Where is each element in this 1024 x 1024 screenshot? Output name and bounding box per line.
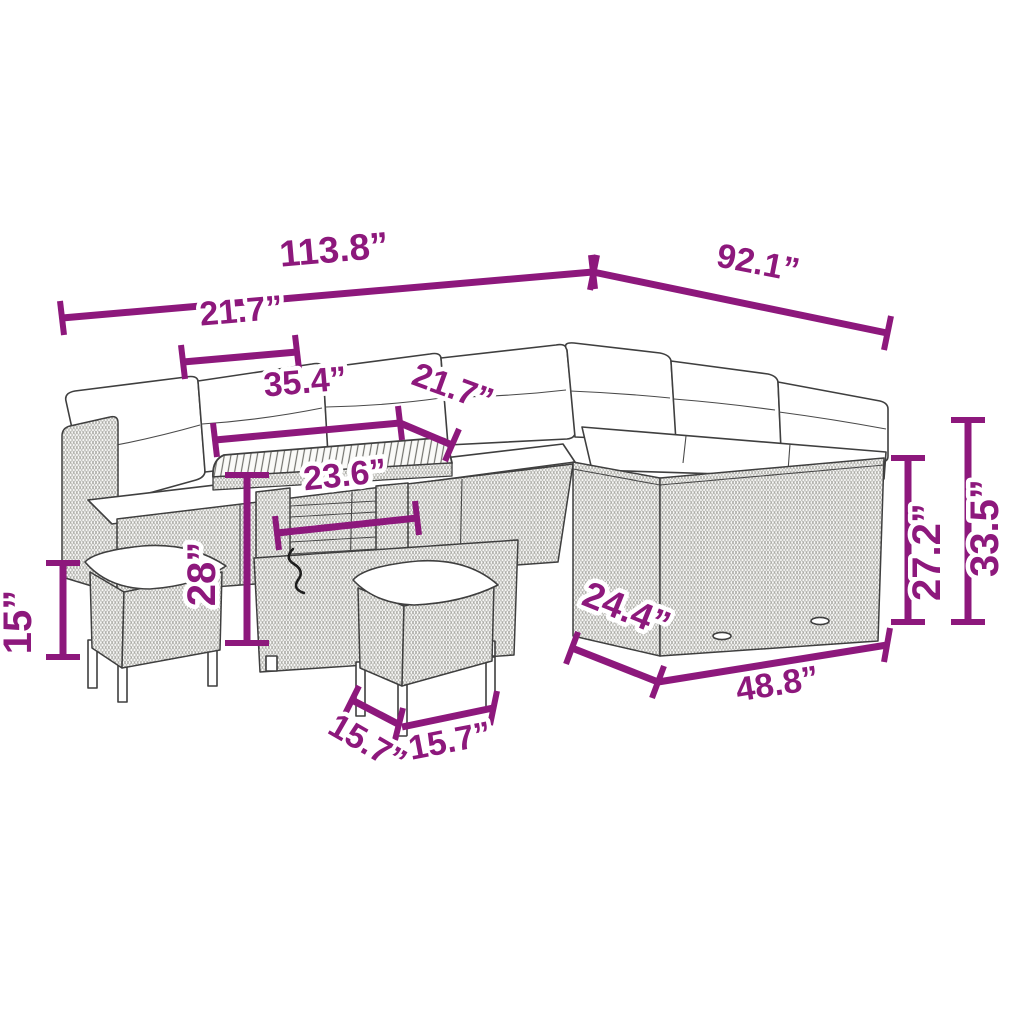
table-pedestal-left xyxy=(256,488,290,566)
dim-label-overall-width-left: 113.8” xyxy=(278,224,390,274)
dim-label-stool-height: 15” xyxy=(0,590,40,655)
dimension-overall-height: 33.5” xyxy=(951,420,1007,622)
dim-label-overall-width-right: 92.1” xyxy=(714,237,803,290)
dim-label-left-section-width: 21.7” xyxy=(198,288,284,333)
dimension-overall-width-left: 113.8” xyxy=(60,224,595,335)
sofa-back-cushions-right xyxy=(566,343,888,479)
sofa-box-front xyxy=(660,458,884,656)
dimension-overall-width-right: 92.1” xyxy=(590,237,891,350)
dimension-stool-width: 15.7” xyxy=(402,691,497,768)
dim-label-table-section-width: 35.4” xyxy=(262,359,348,404)
dim-label-backrest-height: 27.2” xyxy=(905,503,949,601)
dim-label-overall-height: 33.5” xyxy=(963,479,1007,577)
sofa-foot xyxy=(811,617,829,624)
dim-label-table-height: 28” xyxy=(180,542,224,607)
table-foot xyxy=(266,656,277,671)
lounge-set-dimension-diagram: 113.8” 92.1” 21.7” 35.4” 21.7” 23.6” 28” xyxy=(0,0,1024,1024)
dimension-backrest-height: 27.2” xyxy=(891,458,949,622)
dimension-diagram-page: 113.8” 92.1” 21.7” 35.4” 21.7” 23.6” 28” xyxy=(0,0,1024,1024)
sofa-foot xyxy=(713,632,731,639)
